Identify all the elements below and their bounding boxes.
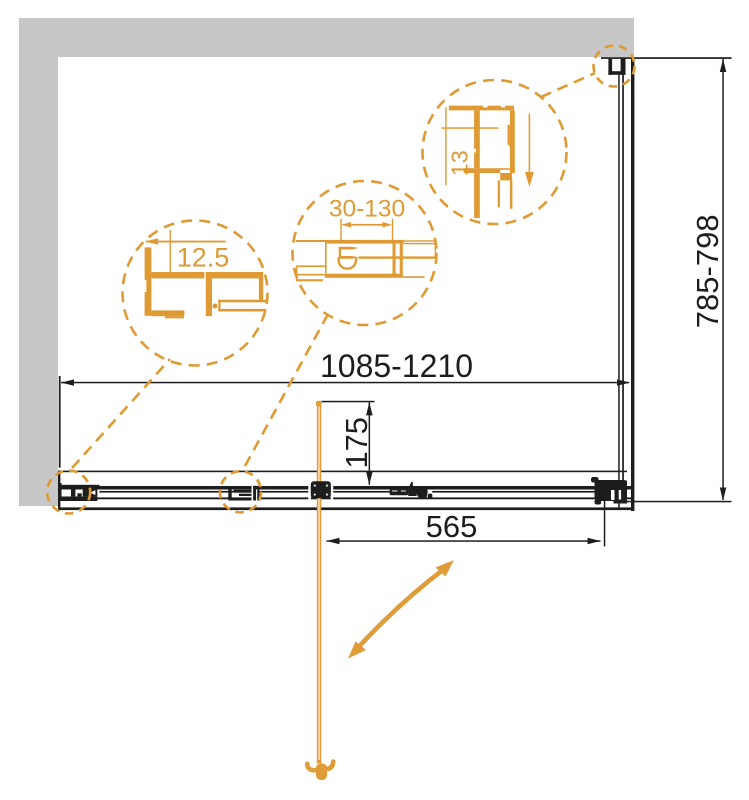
svg-text:1085-1210: 1085-1210 xyxy=(320,348,473,384)
svg-text:785-798: 785-798 xyxy=(690,214,725,328)
svg-text:12.5: 12.5 xyxy=(177,243,230,273)
svg-text:13: 13 xyxy=(446,150,472,176)
svg-text:565: 565 xyxy=(426,509,478,544)
svg-text:30-130: 30-130 xyxy=(329,195,405,222)
svg-text:175: 175 xyxy=(339,417,374,469)
